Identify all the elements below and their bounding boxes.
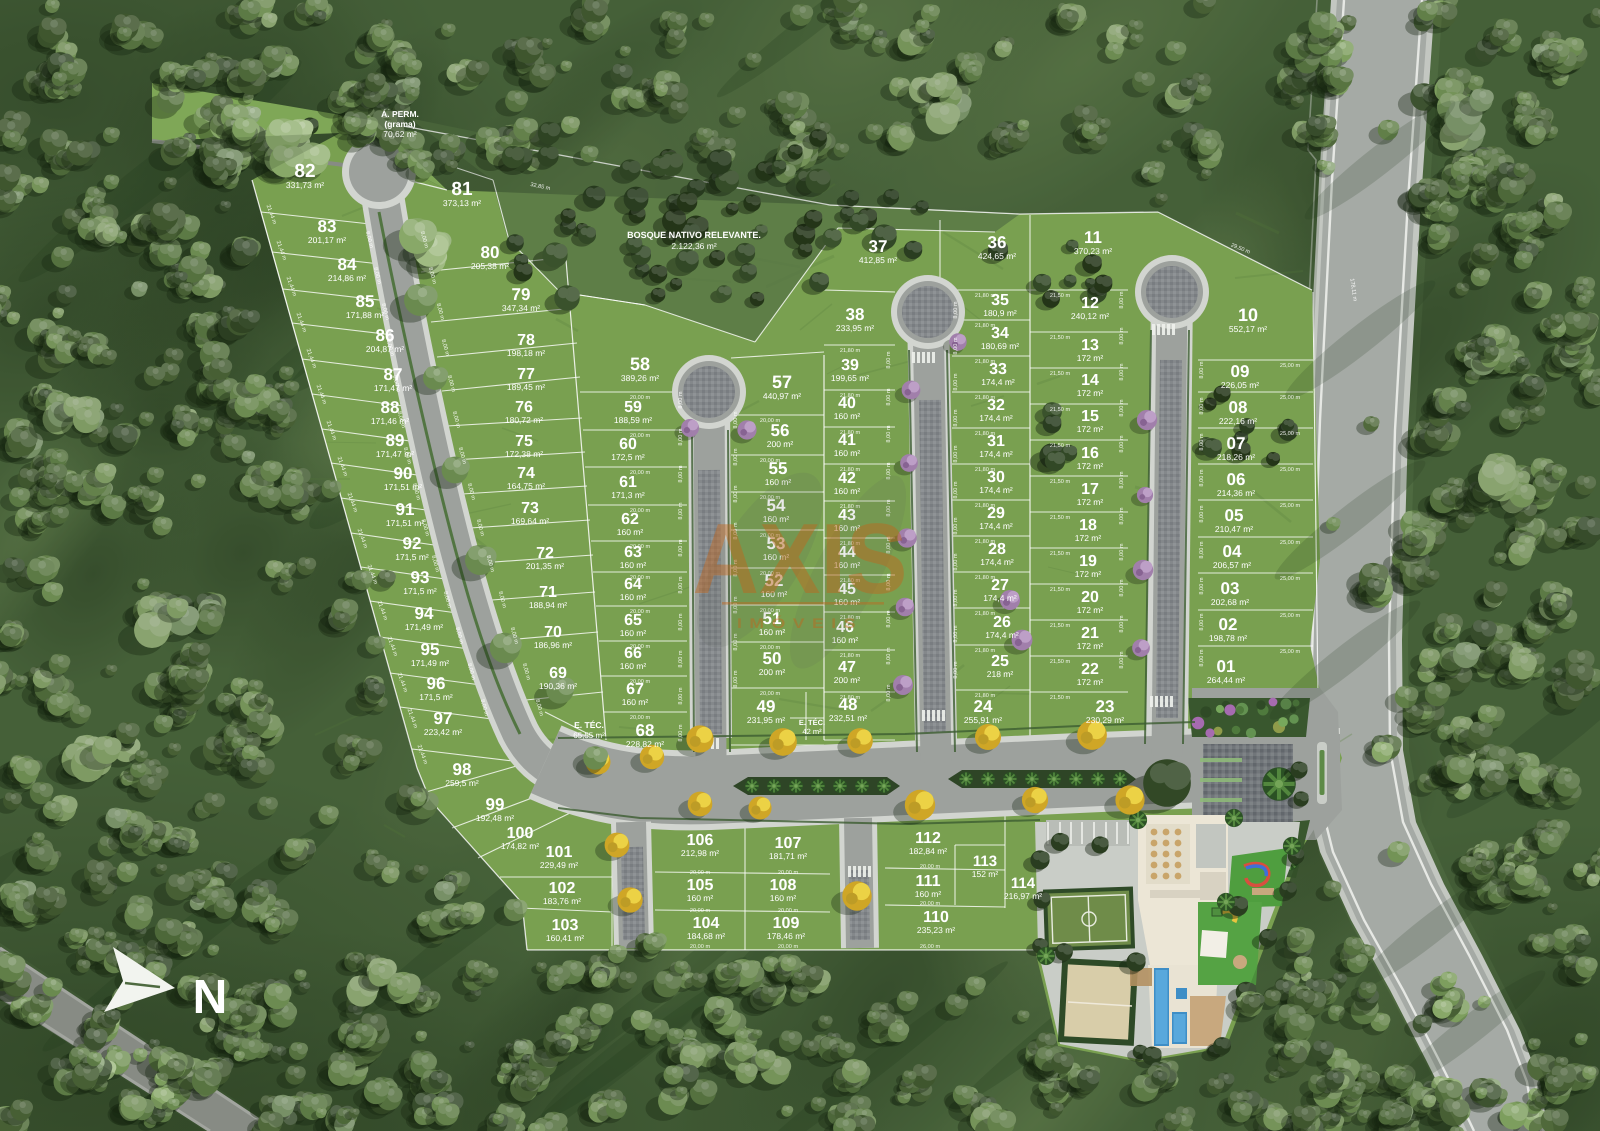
svg-text:226,05 m²: 226,05 m² xyxy=(1221,380,1259,390)
svg-text:171,88 m²: 171,88 m² xyxy=(346,310,384,320)
svg-text:21: 21 xyxy=(1081,625,1099,642)
svg-text:20,00 m: 20,00 m xyxy=(778,908,799,914)
svg-text:189,45 m²: 189,45 m² xyxy=(507,382,545,392)
svg-text:89: 89 xyxy=(386,431,405,450)
svg-text:160 m²: 160 m² xyxy=(620,628,647,638)
svg-text:8,00 m: 8,00 m xyxy=(1199,613,1205,630)
svg-text:20: 20 xyxy=(1081,589,1099,606)
svg-text:8,00 m: 8,00 m xyxy=(733,485,739,502)
svg-text:8,00 m: 8,00 m xyxy=(1199,361,1205,378)
svg-text:42 m²: 42 m² xyxy=(802,727,822,736)
svg-text:172 m²: 172 m² xyxy=(1077,605,1104,615)
svg-text:75: 75 xyxy=(515,433,533,450)
svg-text:20,00 m: 20,00 m xyxy=(630,544,651,550)
svg-text:8,00 m: 8,00 m xyxy=(953,625,959,642)
svg-text:201,17 m²: 201,17 m² xyxy=(308,235,346,245)
svg-text:8,00 m: 8,00 m xyxy=(1119,651,1125,668)
svg-text:373,13 m²: 373,13 m² xyxy=(443,198,481,208)
svg-text:20,00 m: 20,00 m xyxy=(630,609,651,615)
svg-text:101: 101 xyxy=(546,844,573,861)
svg-text:E. TÉC.: E. TÉC. xyxy=(574,720,604,730)
svg-text:21,80 m: 21,80 m xyxy=(975,503,996,509)
svg-text:174,4 m²: 174,4 m² xyxy=(979,449,1013,459)
svg-text:206,57 m²: 206,57 m² xyxy=(1213,560,1251,570)
svg-text:8,00 m: 8,00 m xyxy=(1119,471,1125,488)
svg-text:160 m²: 160 m² xyxy=(620,592,647,602)
svg-text:182,84 m²: 182,84 m² xyxy=(909,846,947,856)
svg-text:160 m²: 160 m² xyxy=(687,893,714,903)
svg-text:21,80 m: 21,80 m xyxy=(975,648,996,654)
svg-text:21,80 m: 21,80 m xyxy=(975,611,996,617)
svg-text:8,00 m: 8,00 m xyxy=(678,724,684,741)
svg-text:85: 85 xyxy=(356,292,375,311)
svg-text:8,00 m: 8,00 m xyxy=(1119,543,1125,560)
svg-text:210,47 m²: 210,47 m² xyxy=(1215,524,1253,534)
svg-text:36: 36 xyxy=(988,233,1007,252)
svg-text:13: 13 xyxy=(1081,337,1099,354)
svg-text:180,72 m²: 180,72 m² xyxy=(505,415,543,425)
svg-text:03: 03 xyxy=(1221,579,1240,598)
svg-text:8,00 m: 8,00 m xyxy=(733,448,739,465)
svg-text:AXIS: AXIS xyxy=(693,503,908,615)
svg-text:111: 111 xyxy=(916,873,941,890)
svg-text:259,5 m²: 259,5 m² xyxy=(445,778,479,788)
svg-text:20,00 m: 20,00 m xyxy=(920,864,941,870)
svg-text:99: 99 xyxy=(486,795,505,814)
svg-text:24: 24 xyxy=(974,697,993,716)
svg-text:8,00 m: 8,00 m xyxy=(886,388,892,405)
svg-text:232,51 m²: 232,51 m² xyxy=(829,713,867,723)
svg-text:21,80 m: 21,80 m xyxy=(975,359,996,365)
svg-text:20,00 m: 20,00 m xyxy=(760,418,781,424)
svg-text:14: 14 xyxy=(1081,372,1099,389)
svg-text:180,9 m²: 180,9 m² xyxy=(983,308,1017,318)
svg-text:93: 93 xyxy=(411,568,430,587)
svg-text:8,00 m: 8,00 m xyxy=(1199,433,1205,450)
svg-text:25,00 m: 25,00 m xyxy=(1280,649,1301,655)
svg-text:76: 76 xyxy=(515,399,533,416)
svg-text:25,00 m: 25,00 m xyxy=(1280,540,1301,546)
svg-text:110: 110 xyxy=(923,909,949,926)
svg-text:72: 72 xyxy=(536,545,554,562)
svg-text:38: 38 xyxy=(846,305,865,324)
svg-text:09: 09 xyxy=(1231,362,1250,381)
svg-text:114: 114 xyxy=(1011,875,1036,892)
svg-text:8,00 m: 8,00 m xyxy=(1119,579,1125,596)
svg-text:8,00 m: 8,00 m xyxy=(953,589,959,606)
svg-text:8,00 m: 8,00 m xyxy=(1119,507,1125,524)
svg-text:21,80 m: 21,80 m xyxy=(975,539,996,545)
svg-text:19: 19 xyxy=(1079,553,1097,570)
svg-text:17: 17 xyxy=(1081,481,1099,498)
svg-text:8,00 m: 8,00 m xyxy=(886,351,892,368)
svg-text:172 m²: 172 m² xyxy=(1077,461,1104,471)
svg-text:8,00 m: 8,00 m xyxy=(953,409,959,426)
svg-text:200 m²: 200 m² xyxy=(834,675,861,685)
svg-text:21,80 m: 21,80 m xyxy=(975,395,996,401)
svg-text:49: 49 xyxy=(757,697,776,716)
svg-text:160 m²: 160 m² xyxy=(622,697,649,707)
svg-text:8,00 m: 8,00 m xyxy=(678,391,684,408)
svg-text:12: 12 xyxy=(1081,295,1099,312)
svg-text:20,00 m: 20,00 m xyxy=(630,679,651,685)
svg-text:21,80 m: 21,80 m xyxy=(975,575,996,581)
svg-text:08: 08 xyxy=(1229,398,1248,417)
svg-text:184,68 m²: 184,68 m² xyxy=(687,931,725,941)
svg-text:25: 25 xyxy=(991,653,1009,670)
svg-text:58: 58 xyxy=(630,354,650,374)
svg-text:21,80 m: 21,80 m xyxy=(975,693,996,699)
svg-text:20,00 m: 20,00 m xyxy=(630,508,651,514)
svg-text:230,29 m²: 230,29 m² xyxy=(1086,715,1124,725)
svg-text:172 m²: 172 m² xyxy=(1077,388,1104,398)
svg-text:21,80 m: 21,80 m xyxy=(840,430,861,436)
svg-text:90: 90 xyxy=(394,464,413,483)
svg-text:21,50 m: 21,50 m xyxy=(1050,443,1071,449)
svg-text:160 m²: 160 m² xyxy=(617,527,644,537)
svg-text:104: 104 xyxy=(693,915,720,932)
svg-text:21,50 m: 21,50 m xyxy=(1050,551,1071,557)
svg-text:79: 79 xyxy=(512,285,531,304)
svg-text:8,00 m: 8,00 m xyxy=(1199,649,1205,666)
svg-text:164,75 m²: 164,75 m² xyxy=(507,481,545,491)
svg-text:8,00 m: 8,00 m xyxy=(678,465,684,482)
svg-text:169,64 m²: 169,64 m² xyxy=(511,516,549,526)
svg-text:02: 02 xyxy=(1219,615,1238,634)
svg-text:11: 11 xyxy=(1084,228,1102,247)
svg-text:172 m²: 172 m² xyxy=(1077,677,1104,687)
svg-text:20,00 m: 20,00 m xyxy=(778,870,799,876)
svg-text:20,00 m: 20,00 m xyxy=(630,470,651,476)
svg-text:8,00 m: 8,00 m xyxy=(886,647,892,664)
svg-text:100: 100 xyxy=(507,825,534,842)
svg-text:8,00 m: 8,00 m xyxy=(1199,469,1205,486)
svg-text:200 m²: 200 m² xyxy=(767,439,794,449)
svg-text:82: 82 xyxy=(294,161,315,182)
svg-text:20,00 m: 20,00 m xyxy=(630,395,651,401)
svg-text:01: 01 xyxy=(1217,657,1236,676)
svg-text:83: 83 xyxy=(318,217,337,236)
svg-text:Á. PERM.: Á. PERM. xyxy=(381,109,419,119)
svg-text:183,76 m²: 183,76 m² xyxy=(543,896,581,906)
svg-text:174,4 m²: 174,4 m² xyxy=(979,485,1013,495)
svg-text:255,91 m²: 255,91 m² xyxy=(964,715,1002,725)
svg-text:174,4 m²: 174,4 m² xyxy=(980,557,1014,567)
svg-text:8,00 m: 8,00 m xyxy=(886,425,892,442)
svg-text:108: 108 xyxy=(770,877,797,894)
svg-text:160 m²: 160 m² xyxy=(770,893,797,903)
svg-text:20,00 m: 20,00 m xyxy=(630,575,651,581)
svg-text:21,50 m: 21,50 m xyxy=(1050,407,1071,413)
svg-text:8,00 m: 8,00 m xyxy=(678,687,684,704)
svg-text:95: 95 xyxy=(421,640,440,659)
svg-text:178,46 m²: 178,46 m² xyxy=(767,931,805,941)
svg-text:06: 06 xyxy=(1227,470,1246,489)
svg-text:16: 16 xyxy=(1081,445,1099,462)
svg-text:412,85 m²: 412,85 m² xyxy=(859,255,897,265)
svg-text:8,00 m: 8,00 m xyxy=(1119,615,1125,632)
svg-text:25,00 m: 25,00 m xyxy=(1280,576,1301,582)
svg-text:21,80 m: 21,80 m xyxy=(840,653,861,659)
svg-text:201,35 m²: 201,35 m² xyxy=(526,561,564,571)
svg-text:26: 26 xyxy=(993,614,1011,631)
svg-text:8,00 m: 8,00 m xyxy=(1199,541,1205,558)
svg-text:05: 05 xyxy=(1225,506,1244,525)
svg-text:20,00 m: 20,00 m xyxy=(630,715,651,721)
svg-text:39: 39 xyxy=(841,357,859,374)
svg-text:171,51 m²: 171,51 m² xyxy=(386,518,424,528)
svg-text:91: 91 xyxy=(396,500,415,519)
svg-text:160 m²: 160 m² xyxy=(620,560,647,570)
svg-text:8,00 m: 8,00 m xyxy=(953,553,959,570)
svg-text:216,97 m²: 216,97 m² xyxy=(1004,891,1042,901)
svg-text:84: 84 xyxy=(338,255,357,274)
svg-text:21,50 m: 21,50 m xyxy=(1050,587,1071,593)
svg-text:73: 73 xyxy=(521,500,539,517)
svg-text:103: 103 xyxy=(552,917,579,934)
svg-text:106: 106 xyxy=(687,832,714,849)
svg-text:98: 98 xyxy=(453,760,472,779)
svg-text:152 m²: 152 m² xyxy=(972,869,999,879)
svg-text:37: 37 xyxy=(869,237,888,256)
svg-text:8,00 m: 8,00 m xyxy=(953,373,959,390)
svg-text:174,4 m²: 174,4 m² xyxy=(983,593,1017,603)
svg-text:172 m²: 172 m² xyxy=(1077,641,1104,651)
svg-text:8,00 m: 8,00 m xyxy=(1199,577,1205,594)
svg-text:80: 80 xyxy=(481,243,500,262)
svg-text:25,00 m: 25,00 m xyxy=(1280,613,1301,619)
svg-text:04: 04 xyxy=(1223,542,1242,561)
svg-text:21,80 m: 21,80 m xyxy=(975,323,996,329)
svg-text:172 m²: 172 m² xyxy=(1077,497,1104,507)
svg-text:21,50 m: 21,50 m xyxy=(1050,293,1071,299)
svg-text:20,00 m: 20,00 m xyxy=(690,870,711,876)
svg-text:21,50 m: 21,50 m xyxy=(1050,371,1071,377)
svg-text:214,86 m²: 214,86 m² xyxy=(328,273,366,283)
svg-text:20,00 m: 20,00 m xyxy=(920,901,941,907)
svg-text:112: 112 xyxy=(915,830,941,847)
svg-text:N: N xyxy=(193,971,228,1024)
svg-text:21,50 m: 21,50 m xyxy=(1050,695,1071,701)
svg-text:21,50 m: 21,50 m xyxy=(1050,335,1071,341)
svg-text:21,50 m: 21,50 m xyxy=(1050,623,1071,629)
svg-text:21,80 m: 21,80 m xyxy=(840,393,861,399)
svg-text:102: 102 xyxy=(549,880,576,897)
svg-text:218 m²: 218 m² xyxy=(987,669,1014,679)
svg-text:20,00 m: 20,00 m xyxy=(690,908,711,914)
svg-text:8,00 m: 8,00 m xyxy=(678,650,684,667)
svg-text:20,00 m: 20,00 m xyxy=(760,645,781,651)
svg-text:214,36 m²: 214,36 m² xyxy=(1217,488,1255,498)
svg-text:18: 18 xyxy=(1079,517,1097,534)
svg-text:347,34 m²: 347,34 m² xyxy=(502,303,540,313)
svg-text:171,3 m²: 171,3 m² xyxy=(611,490,645,500)
svg-text:25,00 m: 25,00 m xyxy=(1280,363,1301,369)
svg-text:21,50 m: 21,50 m xyxy=(1050,515,1071,521)
svg-text:199,65 m²: 199,65 m² xyxy=(831,373,869,383)
svg-text:07: 07 xyxy=(1227,434,1246,453)
svg-text:8,00 m: 8,00 m xyxy=(953,301,959,318)
svg-text:8,00 m: 8,00 m xyxy=(1199,397,1205,414)
svg-text:331,73 m²: 331,73 m² xyxy=(286,180,324,190)
svg-text:20,00 m: 20,00 m xyxy=(760,458,781,464)
svg-text:160 m²: 160 m² xyxy=(834,411,861,421)
svg-text:21,80 m: 21,80 m xyxy=(975,467,996,473)
svg-text:171,5 m²: 171,5 m² xyxy=(403,586,437,596)
svg-text:8,00 m: 8,00 m xyxy=(953,337,959,354)
svg-text:97: 97 xyxy=(434,709,453,728)
svg-text:223,42 m²: 223,42 m² xyxy=(424,727,462,737)
svg-text:424,65 m²: 424,65 m² xyxy=(978,251,1016,261)
svg-text:BOSQUE NATIVO RELEVANTE.: BOSQUE NATIVO RELEVANTE. xyxy=(627,230,761,240)
svg-text:8,00 m: 8,00 m xyxy=(886,684,892,701)
svg-text:212,98 m²: 212,98 m² xyxy=(681,848,719,858)
svg-text:160 m²: 160 m² xyxy=(915,889,942,899)
svg-text:264,44 m²: 264,44 m² xyxy=(1207,675,1245,685)
svg-text:21,80 m: 21,80 m xyxy=(975,431,996,437)
svg-text:21,50 m: 21,50 m xyxy=(1050,659,1071,665)
svg-text:8,00 m: 8,00 m xyxy=(733,411,739,428)
svg-text:21,80 m: 21,80 m xyxy=(840,348,861,354)
svg-text:8,00 m: 8,00 m xyxy=(678,428,684,445)
svg-text:172,5 m²: 172,5 m² xyxy=(611,452,645,462)
svg-text:22: 22 xyxy=(1081,661,1099,678)
svg-text:25,00 m: 25,00 m xyxy=(1280,395,1301,401)
svg-text:E. TÉC.: E. TÉC. xyxy=(799,718,825,727)
svg-text:8,00 m: 8,00 m xyxy=(1119,363,1125,380)
svg-text:81: 81 xyxy=(451,179,473,200)
svg-text:69: 69 xyxy=(549,665,567,682)
svg-text:235,23 m²: 235,23 m² xyxy=(917,925,955,935)
svg-text:8,00 m: 8,00 m xyxy=(1119,399,1125,416)
svg-text:68: 68 xyxy=(636,721,655,740)
svg-text:21,80 m: 21,80 m xyxy=(975,293,996,299)
svg-text:370,23 m²: 370,23 m² xyxy=(1074,246,1112,256)
svg-text:174,4 m²: 174,4 m² xyxy=(985,630,1019,640)
svg-text:188,59 m²: 188,59 m² xyxy=(614,415,652,425)
svg-text:180,69 m²: 180,69 m² xyxy=(981,341,1019,351)
svg-text:(grama): (grama) xyxy=(384,119,415,129)
svg-text:8,00 m: 8,00 m xyxy=(1119,435,1125,452)
svg-text:174,4 m²: 174,4 m² xyxy=(981,377,1015,387)
svg-text:8,00 m: 8,00 m xyxy=(1199,505,1205,522)
svg-text:171,5 m²: 171,5 m² xyxy=(419,692,453,702)
svg-text:172 m²: 172 m² xyxy=(1077,353,1104,363)
svg-text:202,68 m²: 202,68 m² xyxy=(1211,597,1249,607)
svg-text:25,00 m: 25,00 m xyxy=(1280,431,1301,437)
svg-text:25,00 m: 25,00 m xyxy=(1280,467,1301,473)
svg-text:IMÓVEIS: IMÓVEIS xyxy=(737,615,863,631)
svg-text:57: 57 xyxy=(772,372,792,392)
svg-text:20,00 m: 20,00 m xyxy=(630,644,651,650)
svg-text:181,71 m²: 181,71 m² xyxy=(769,851,807,861)
svg-text:389,26 m²: 389,26 m² xyxy=(621,373,659,383)
svg-text:26,00 m: 26,00 m xyxy=(920,944,941,950)
svg-text:8,00 m: 8,00 m xyxy=(678,576,684,593)
svg-text:171,5 m²: 171,5 m² xyxy=(395,552,429,562)
svg-text:21,50 m: 21,50 m xyxy=(1050,479,1071,485)
svg-text:231,95 m²: 231,95 m² xyxy=(747,715,785,725)
svg-text:15: 15 xyxy=(1081,408,1099,425)
svg-text:229,49 m²: 229,49 m² xyxy=(540,860,578,870)
svg-text:160 m²: 160 m² xyxy=(620,661,647,671)
svg-text:50: 50 xyxy=(763,649,782,668)
svg-text:8,00 m: 8,00 m xyxy=(953,481,959,498)
svg-text:107: 107 xyxy=(775,835,802,852)
svg-text:8,00 m: 8,00 m xyxy=(1119,327,1125,344)
svg-text:20,00 m: 20,00 m xyxy=(690,944,711,950)
svg-text:61: 61 xyxy=(619,474,637,491)
svg-text:186,96 m²: 186,96 m² xyxy=(534,640,572,650)
svg-text:171,49 m²: 171,49 m² xyxy=(405,622,443,632)
svg-text:8,00 m: 8,00 m xyxy=(953,445,959,462)
svg-text:2.122,36 m²: 2.122,36 m² xyxy=(671,241,717,251)
svg-text:105: 105 xyxy=(687,877,714,894)
svg-text:228,82 m²: 228,82 m² xyxy=(626,739,664,749)
svg-text:8,00 m: 8,00 m xyxy=(953,661,959,678)
svg-text:160,41 m²: 160,41 m² xyxy=(546,933,584,943)
svg-text:8,00 m: 8,00 m xyxy=(1119,291,1125,308)
svg-text:20,00 m: 20,00 m xyxy=(760,691,781,697)
svg-text:78: 78 xyxy=(517,332,535,349)
svg-text:172 m²: 172 m² xyxy=(1077,424,1104,434)
svg-text:65,55 m²: 65,55 m² xyxy=(573,731,605,740)
svg-text:59: 59 xyxy=(624,399,642,416)
svg-text:8,00 m: 8,00 m xyxy=(678,539,684,556)
svg-text:160 m²: 160 m² xyxy=(834,448,861,458)
svg-text:188,94 m²: 188,94 m² xyxy=(529,600,567,610)
svg-text:174,4 m²: 174,4 m² xyxy=(979,521,1013,531)
svg-text:47: 47 xyxy=(838,659,856,676)
svg-text:77: 77 xyxy=(517,366,535,383)
svg-text:109: 109 xyxy=(773,915,800,932)
svg-text:74: 74 xyxy=(517,465,535,482)
svg-text:21,80 m: 21,80 m xyxy=(840,695,861,701)
svg-text:21,80 m: 21,80 m xyxy=(840,467,861,473)
svg-text:8,00 m: 8,00 m xyxy=(953,517,959,534)
svg-text:204,87 m²: 204,87 m² xyxy=(366,344,404,354)
svg-text:8,00 m: 8,00 m xyxy=(733,670,739,687)
svg-text:218,26 m²: 218,26 m² xyxy=(1217,452,1255,462)
svg-text:70,62 m²: 70,62 m² xyxy=(383,129,417,139)
svg-text:71: 71 xyxy=(539,584,557,601)
svg-text:174,82 m²: 174,82 m² xyxy=(501,841,539,851)
svg-text:200 m²: 200 m² xyxy=(759,667,786,677)
svg-text:233,95 m²: 233,95 m² xyxy=(836,323,874,333)
svg-text:198,18 m²: 198,18 m² xyxy=(507,348,545,358)
svg-text:174,4 m²: 174,4 m² xyxy=(979,413,1013,423)
svg-text:198,78 m²: 198,78 m² xyxy=(1209,633,1247,643)
svg-text:172 m²: 172 m² xyxy=(1075,533,1102,543)
svg-text:171,49 m²: 171,49 m² xyxy=(411,658,449,668)
svg-text:10: 10 xyxy=(1238,305,1258,325)
svg-text:8,00 m: 8,00 m xyxy=(678,613,684,630)
svg-text:70: 70 xyxy=(544,624,562,641)
svg-text:222,16 m²: 222,16 m² xyxy=(1219,416,1257,426)
svg-text:172 m²: 172 m² xyxy=(1075,569,1102,579)
svg-text:20,00 m: 20,00 m xyxy=(778,944,799,950)
svg-text:205,38 m²: 205,38 m² xyxy=(471,261,509,271)
svg-text:92: 92 xyxy=(403,534,422,553)
svg-text:160 m²: 160 m² xyxy=(834,486,861,496)
svg-text:96: 96 xyxy=(427,674,446,693)
svg-text:552,17 m²: 552,17 m² xyxy=(1229,324,1267,334)
svg-text:8,00 m: 8,00 m xyxy=(678,502,684,519)
svg-text:172,38 m²: 172,38 m² xyxy=(505,449,543,459)
svg-text:440,97 m²: 440,97 m² xyxy=(763,391,801,401)
svg-text:25,00 m: 25,00 m xyxy=(1280,503,1301,509)
svg-text:190,36 m²: 190,36 m² xyxy=(539,681,577,691)
